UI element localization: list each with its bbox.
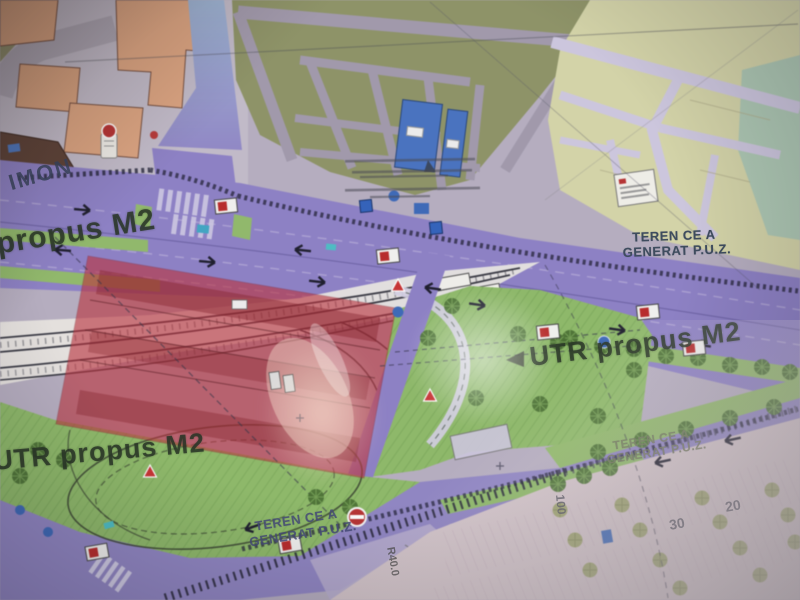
small-sign-post <box>101 124 117 158</box>
map-graphic <box>0 0 800 600</box>
legend-box <box>614 169 658 206</box>
no-entry-sign <box>348 508 366 526</box>
zoning-plan-photo: IMON propus M2 UTR propus M2 UTR propus … <box>0 0 800 600</box>
